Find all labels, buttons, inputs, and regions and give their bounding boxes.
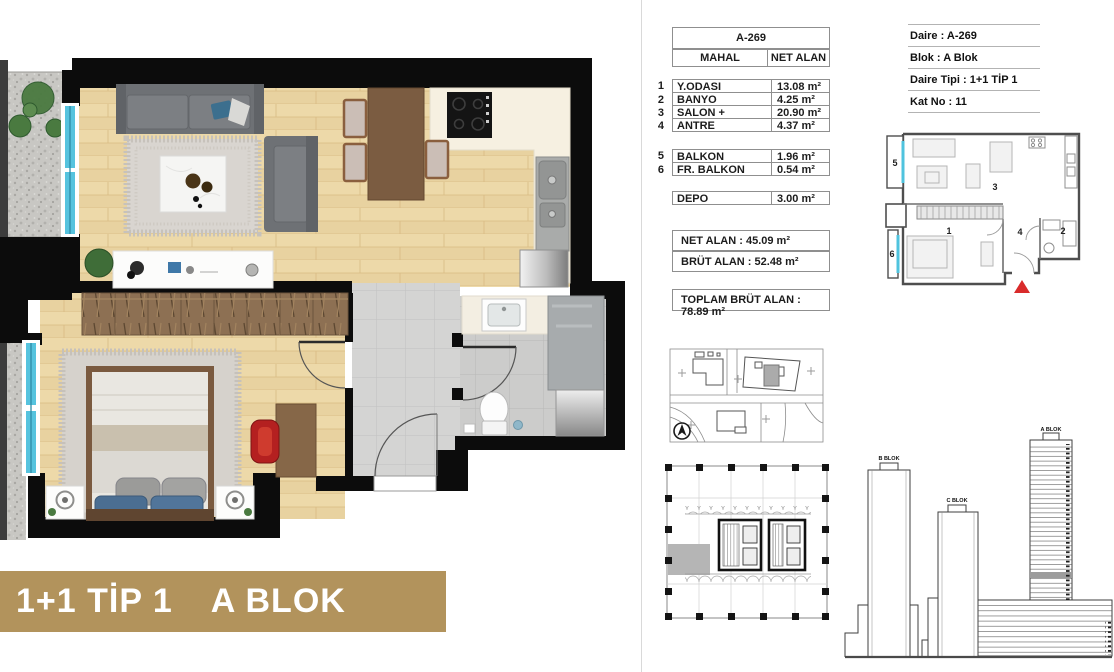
armchair-sofa [264, 136, 318, 232]
depo-row: DEPO 3.00 m² [672, 191, 830, 205]
sofa [116, 84, 264, 134]
elevation-b-blok [845, 463, 918, 657]
table-row: BANYO 4.25 m² [672, 92, 830, 106]
unit-code-header: A-269 [672, 27, 830, 49]
row-number: 6 [650, 164, 664, 176]
refrigerator [520, 250, 568, 287]
floor-key-plan [663, 462, 831, 622]
hall-floor [352, 283, 460, 476]
c-blok-label: C BLOK [946, 498, 967, 504]
nightstand-right [216, 486, 254, 519]
window-bedroom [22, 340, 40, 476]
window-living [61, 103, 79, 237]
plant [85, 249, 113, 277]
schematic-number-yatak: 1 [946, 226, 951, 236]
toplam-brut-alan-summary: TOPLAM BRÜT ALAN : 78.89 m² [672, 289, 830, 311]
schematic-unit-plan: 5 3 1 4 2 6 [883, 126, 1097, 300]
toilet [480, 392, 508, 435]
row-number: 5 [650, 150, 664, 162]
row-number: 3 [650, 107, 664, 119]
row-number: 1 [650, 80, 664, 92]
schematic-storage [886, 204, 906, 227]
col-net-alan: NET ALAN [768, 50, 829, 66]
red-chair [251, 420, 279, 463]
table-row: BALKON 1.96 m² [672, 149, 830, 163]
washer [556, 390, 604, 436]
table-row: FR. BALKON 0.54 m² [672, 162, 830, 176]
nightstand-left [46, 486, 84, 519]
elevation-podium [978, 600, 1112, 656]
site-plan-map [665, 343, 827, 449]
row-number: 2 [650, 94, 664, 106]
wardrobe [82, 293, 348, 335]
building-elevations: B BLOK C BLOK A BLOK [843, 423, 1114, 663]
desk [276, 404, 316, 477]
info-row-kat-no: Kat No : 11 [908, 91, 1040, 113]
table-column-header: MAHAL NET ALAN [672, 49, 830, 67]
elevation-c-blok [922, 505, 978, 657]
bed [86, 366, 214, 521]
info-row-daire: Daire : A-269 [908, 25, 1040, 47]
schematic-wardrobe [917, 206, 1003, 219]
kitchen-sink [536, 157, 569, 251]
dining-table [368, 88, 424, 200]
info-row-blok: Blok : A Blok [908, 47, 1040, 69]
net-alan-summary: NET ALAN : 45.09 m² [672, 230, 830, 251]
schematic-number-salon: 3 [992, 182, 997, 192]
shower [548, 296, 604, 390]
north-compass-icon [674, 423, 690, 439]
table-row: ANTRE 4.37 m² [672, 118, 830, 132]
elevation-a-blok [1030, 433, 1072, 600]
highlighted-building [764, 365, 779, 386]
plan-title-banner: 1+1 TİP 1 A BLOK [0, 571, 446, 632]
unit-info-panel: Daire : A-269 Blok : A Blok Daire Tipi :… [908, 24, 1040, 113]
schematic-number-fr-balkon: 6 [889, 249, 894, 259]
b-blok-label: B BLOK [878, 456, 899, 462]
schematic-number-banyo: 2 [1060, 226, 1065, 236]
coffee-table [160, 156, 226, 212]
entry-arrow [1014, 280, 1030, 293]
cooktop [447, 92, 492, 138]
highlighted-unit [668, 544, 710, 575]
plan-block-label: A BLOK [211, 582, 346, 621]
info-row-daire-tipi: Daire Tipi : 1+1 TİP 1 [908, 69, 1040, 91]
column-divider [641, 0, 642, 672]
plan-type-label: 1+1 TİP 1 [16, 582, 173, 621]
tv-console [113, 251, 273, 288]
schematic-number-antre: 4 [1017, 227, 1022, 237]
a-blok-label: A BLOK [1041, 427, 1062, 433]
brut-alan-summary: BRÜT ALAN : 52.48 m² [672, 251, 830, 272]
table-row: SALON + MUTFAK 20.90 m² [672, 105, 830, 119]
col-mahal: MAHAL [673, 50, 768, 66]
floor-plan-page: 1+1 TİP 1 A BLOK A-269 MAHAL NET ALAN 1 … [0, 0, 1114, 672]
row-number: 4 [650, 120, 664, 132]
schematic-number-balkon: 5 [892, 158, 897, 168]
table-row: Y.ODASI 13.08 m² [672, 79, 830, 93]
